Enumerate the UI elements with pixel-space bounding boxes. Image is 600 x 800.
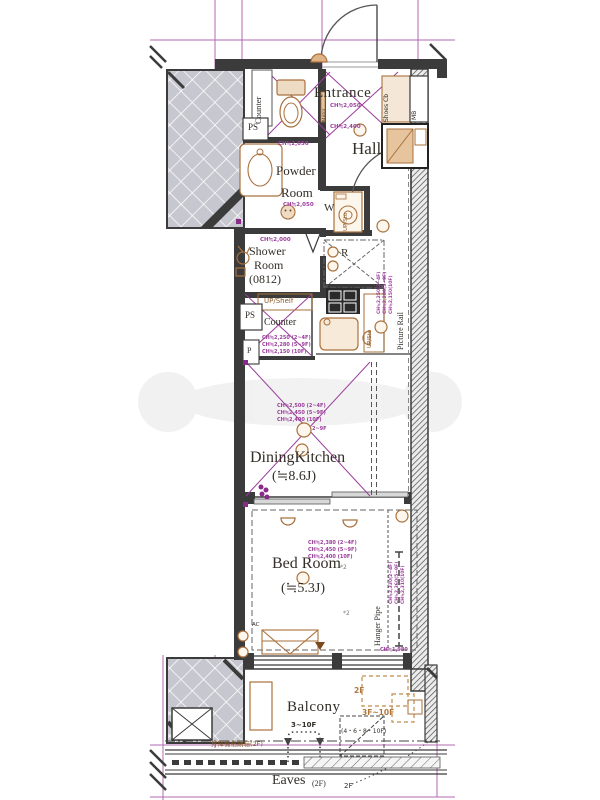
gas-stove xyxy=(326,288,360,314)
shower-folding-door xyxy=(306,234,320,252)
shoes-cb-label: Shoes Cb xyxy=(384,80,390,122)
ch-dk-1: CH≒2,500 (2~4F) xyxy=(277,404,326,409)
hanger-pipe-label: Hanger Pipe xyxy=(374,552,382,646)
bedroom-size-label: (≒5.3J) xyxy=(281,582,325,596)
room-label-shower1: Shower xyxy=(249,245,286,257)
ch-window: CH≒1,980 xyxy=(380,648,408,653)
floor-plan-drawing xyxy=(0,0,600,800)
bracket-46810f-label: (4・6・8・10F) xyxy=(341,729,386,735)
mirror-label: Mirror xyxy=(322,94,327,122)
ch-picture-rail-3: CH≒2,150(10F) xyxy=(390,262,395,314)
eaves-band xyxy=(165,750,447,774)
up-shelf-label: UP/Shelf xyxy=(264,298,293,305)
room-label-bedroom: Bed Room xyxy=(272,556,341,572)
entrance-door xyxy=(311,5,377,62)
ch-dk-2: CH≒2,450 (5~9F) xyxy=(277,411,326,416)
up-sto-kitchen-label: UP/Sto xyxy=(368,300,374,348)
ch-entrance-low: CH≒2,400 xyxy=(330,125,361,131)
picture-rail-label: Picture Rail xyxy=(397,288,405,350)
floor-note-2f: 2F xyxy=(354,687,364,695)
kitchen-sink xyxy=(320,318,358,350)
water-heater xyxy=(328,247,338,271)
ch-dk-note: 2~9F xyxy=(312,427,327,432)
toilet xyxy=(277,80,305,127)
p-label: P xyxy=(247,347,251,355)
room-label-powder1: Powder xyxy=(276,164,316,177)
floor-plan: Entrance CH≒2,050 CH≒2,400 Hall Counter … xyxy=(0,0,600,800)
eaves-2f-label: 2F xyxy=(344,783,352,790)
room-label-balcony: Balcony xyxy=(287,700,341,715)
up-sto-laundry-label: UP/Sto xyxy=(344,197,350,231)
floor-note-3f10f: 3F~10F xyxy=(362,709,394,717)
shower-size-label: (0812) xyxy=(249,273,281,285)
structural-column-top-left xyxy=(167,70,244,228)
counter-top-label: Counter xyxy=(254,74,263,124)
ch-shower: CH≒2,000 xyxy=(260,238,291,244)
ch-bedroom-1: CH≒2,380 (2~4F) xyxy=(308,541,357,546)
elevator-storage-box xyxy=(172,708,212,740)
note2-a: *2 xyxy=(340,565,347,571)
eaves-floor-label: (2F) xyxy=(312,780,326,788)
bedroom-window-band xyxy=(245,653,428,669)
ch-kitchen-1: CH≒2,250 (2~4F) xyxy=(262,336,311,341)
refrigerator-label: R xyxy=(341,248,348,259)
ch-entrance: CH≒2,050 xyxy=(330,104,361,110)
room-label-hall: Hall xyxy=(352,140,381,157)
room-label-dk: DiningKitchen xyxy=(250,450,345,466)
washer-label: W xyxy=(324,203,334,214)
bracket-3-10f-label: 3~10F xyxy=(291,722,316,729)
ch-closet-3: CH≒2,310(10F) xyxy=(402,548,407,604)
counter-mid-label: Counter xyxy=(264,318,296,328)
elevator-box-label: 昇降機格納箱(2F) xyxy=(211,741,263,748)
ch-kitchen-3: CH≒2,150 (10F) xyxy=(262,350,307,355)
ch-powder-top: CH≒2,050 xyxy=(278,142,309,148)
eaves-label: Eaves xyxy=(272,774,305,788)
ps-mid-label: PS xyxy=(245,311,255,320)
ch-bedroom-2: CH≒2,450 (5~9F) xyxy=(308,548,357,553)
ch-kitchen-2: CH≒2,280 (5~9F) xyxy=(262,343,311,348)
room-label-powder2: Room xyxy=(281,186,313,199)
sliding-door xyxy=(254,492,408,504)
room-label-shower2: Room xyxy=(254,259,283,271)
ch-dk-3: CH≒2,400 (10F) xyxy=(277,418,322,423)
dk-size-label: (≒8.6J) xyxy=(272,470,316,484)
ps-top-label: PS xyxy=(248,123,258,132)
mb-label: MB xyxy=(412,82,418,120)
ch-powder-bottom: CH≒2,050 xyxy=(283,203,314,209)
ac-label: AC xyxy=(252,623,260,629)
note2-b: *2 xyxy=(343,611,350,617)
